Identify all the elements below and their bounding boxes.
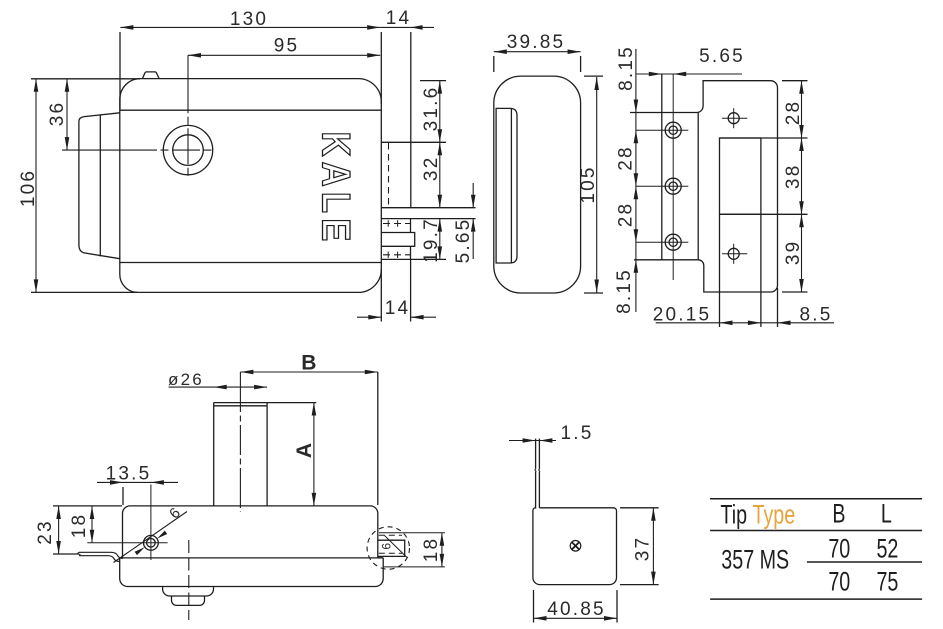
svg-text:8.5: 8.5 bbox=[799, 305, 832, 326]
svg-text:28: 28 bbox=[616, 202, 637, 228]
svg-text:28: 28 bbox=[783, 100, 804, 126]
svg-text:B: B bbox=[832, 500, 845, 530]
svg-text:95: 95 bbox=[274, 36, 300, 57]
svg-text:70: 70 bbox=[828, 568, 850, 598]
svg-text:23: 23 bbox=[35, 519, 56, 545]
svg-text:14: 14 bbox=[386, 8, 412, 29]
svg-text:1.5: 1.5 bbox=[560, 423, 593, 444]
svg-text:KALE: KALE bbox=[314, 132, 358, 247]
svg-text:32: 32 bbox=[421, 156, 442, 182]
svg-text:70: 70 bbox=[828, 535, 850, 565]
svg-text:14: 14 bbox=[385, 298, 411, 319]
svg-text:18: 18 bbox=[421, 537, 442, 563]
svg-text:A: A bbox=[293, 443, 316, 458]
svg-text:20.15: 20.15 bbox=[653, 305, 712, 326]
svg-text:75: 75 bbox=[876, 568, 898, 598]
svg-text:13.5: 13.5 bbox=[106, 464, 152, 485]
svg-text:L: L bbox=[881, 500, 892, 530]
svg-text:8.15: 8.15 bbox=[614, 268, 635, 314]
svg-text:B: B bbox=[301, 352, 316, 375]
svg-text:28: 28 bbox=[616, 145, 637, 171]
svg-text:Tip Type: Tip Type bbox=[720, 501, 795, 531]
svg-text:36: 36 bbox=[47, 101, 68, 127]
svg-text:38: 38 bbox=[783, 164, 804, 190]
svg-text:18: 18 bbox=[69, 513, 90, 539]
svg-text:6: 6 bbox=[379, 543, 393, 550]
svg-text:39: 39 bbox=[783, 240, 804, 266]
svg-text:31.6: 31.6 bbox=[421, 86, 442, 132]
svg-text:5.65: 5.65 bbox=[453, 218, 474, 264]
svg-text:130: 130 bbox=[230, 9, 268, 30]
svg-text:105: 105 bbox=[578, 165, 599, 203]
svg-text:5.65: 5.65 bbox=[699, 46, 745, 67]
svg-text:52: 52 bbox=[876, 535, 898, 565]
svg-text:39.85: 39.85 bbox=[507, 32, 566, 53]
svg-text:37: 37 bbox=[633, 536, 654, 562]
svg-text:19.7: 19.7 bbox=[421, 217, 442, 263]
svg-text:106: 106 bbox=[18, 169, 39, 207]
svg-text:ø26: ø26 bbox=[168, 370, 204, 389]
svg-text:40.85: 40.85 bbox=[547, 599, 606, 620]
svg-text:8.15: 8.15 bbox=[616, 45, 637, 91]
svg-text:357 MS: 357 MS bbox=[721, 546, 789, 576]
